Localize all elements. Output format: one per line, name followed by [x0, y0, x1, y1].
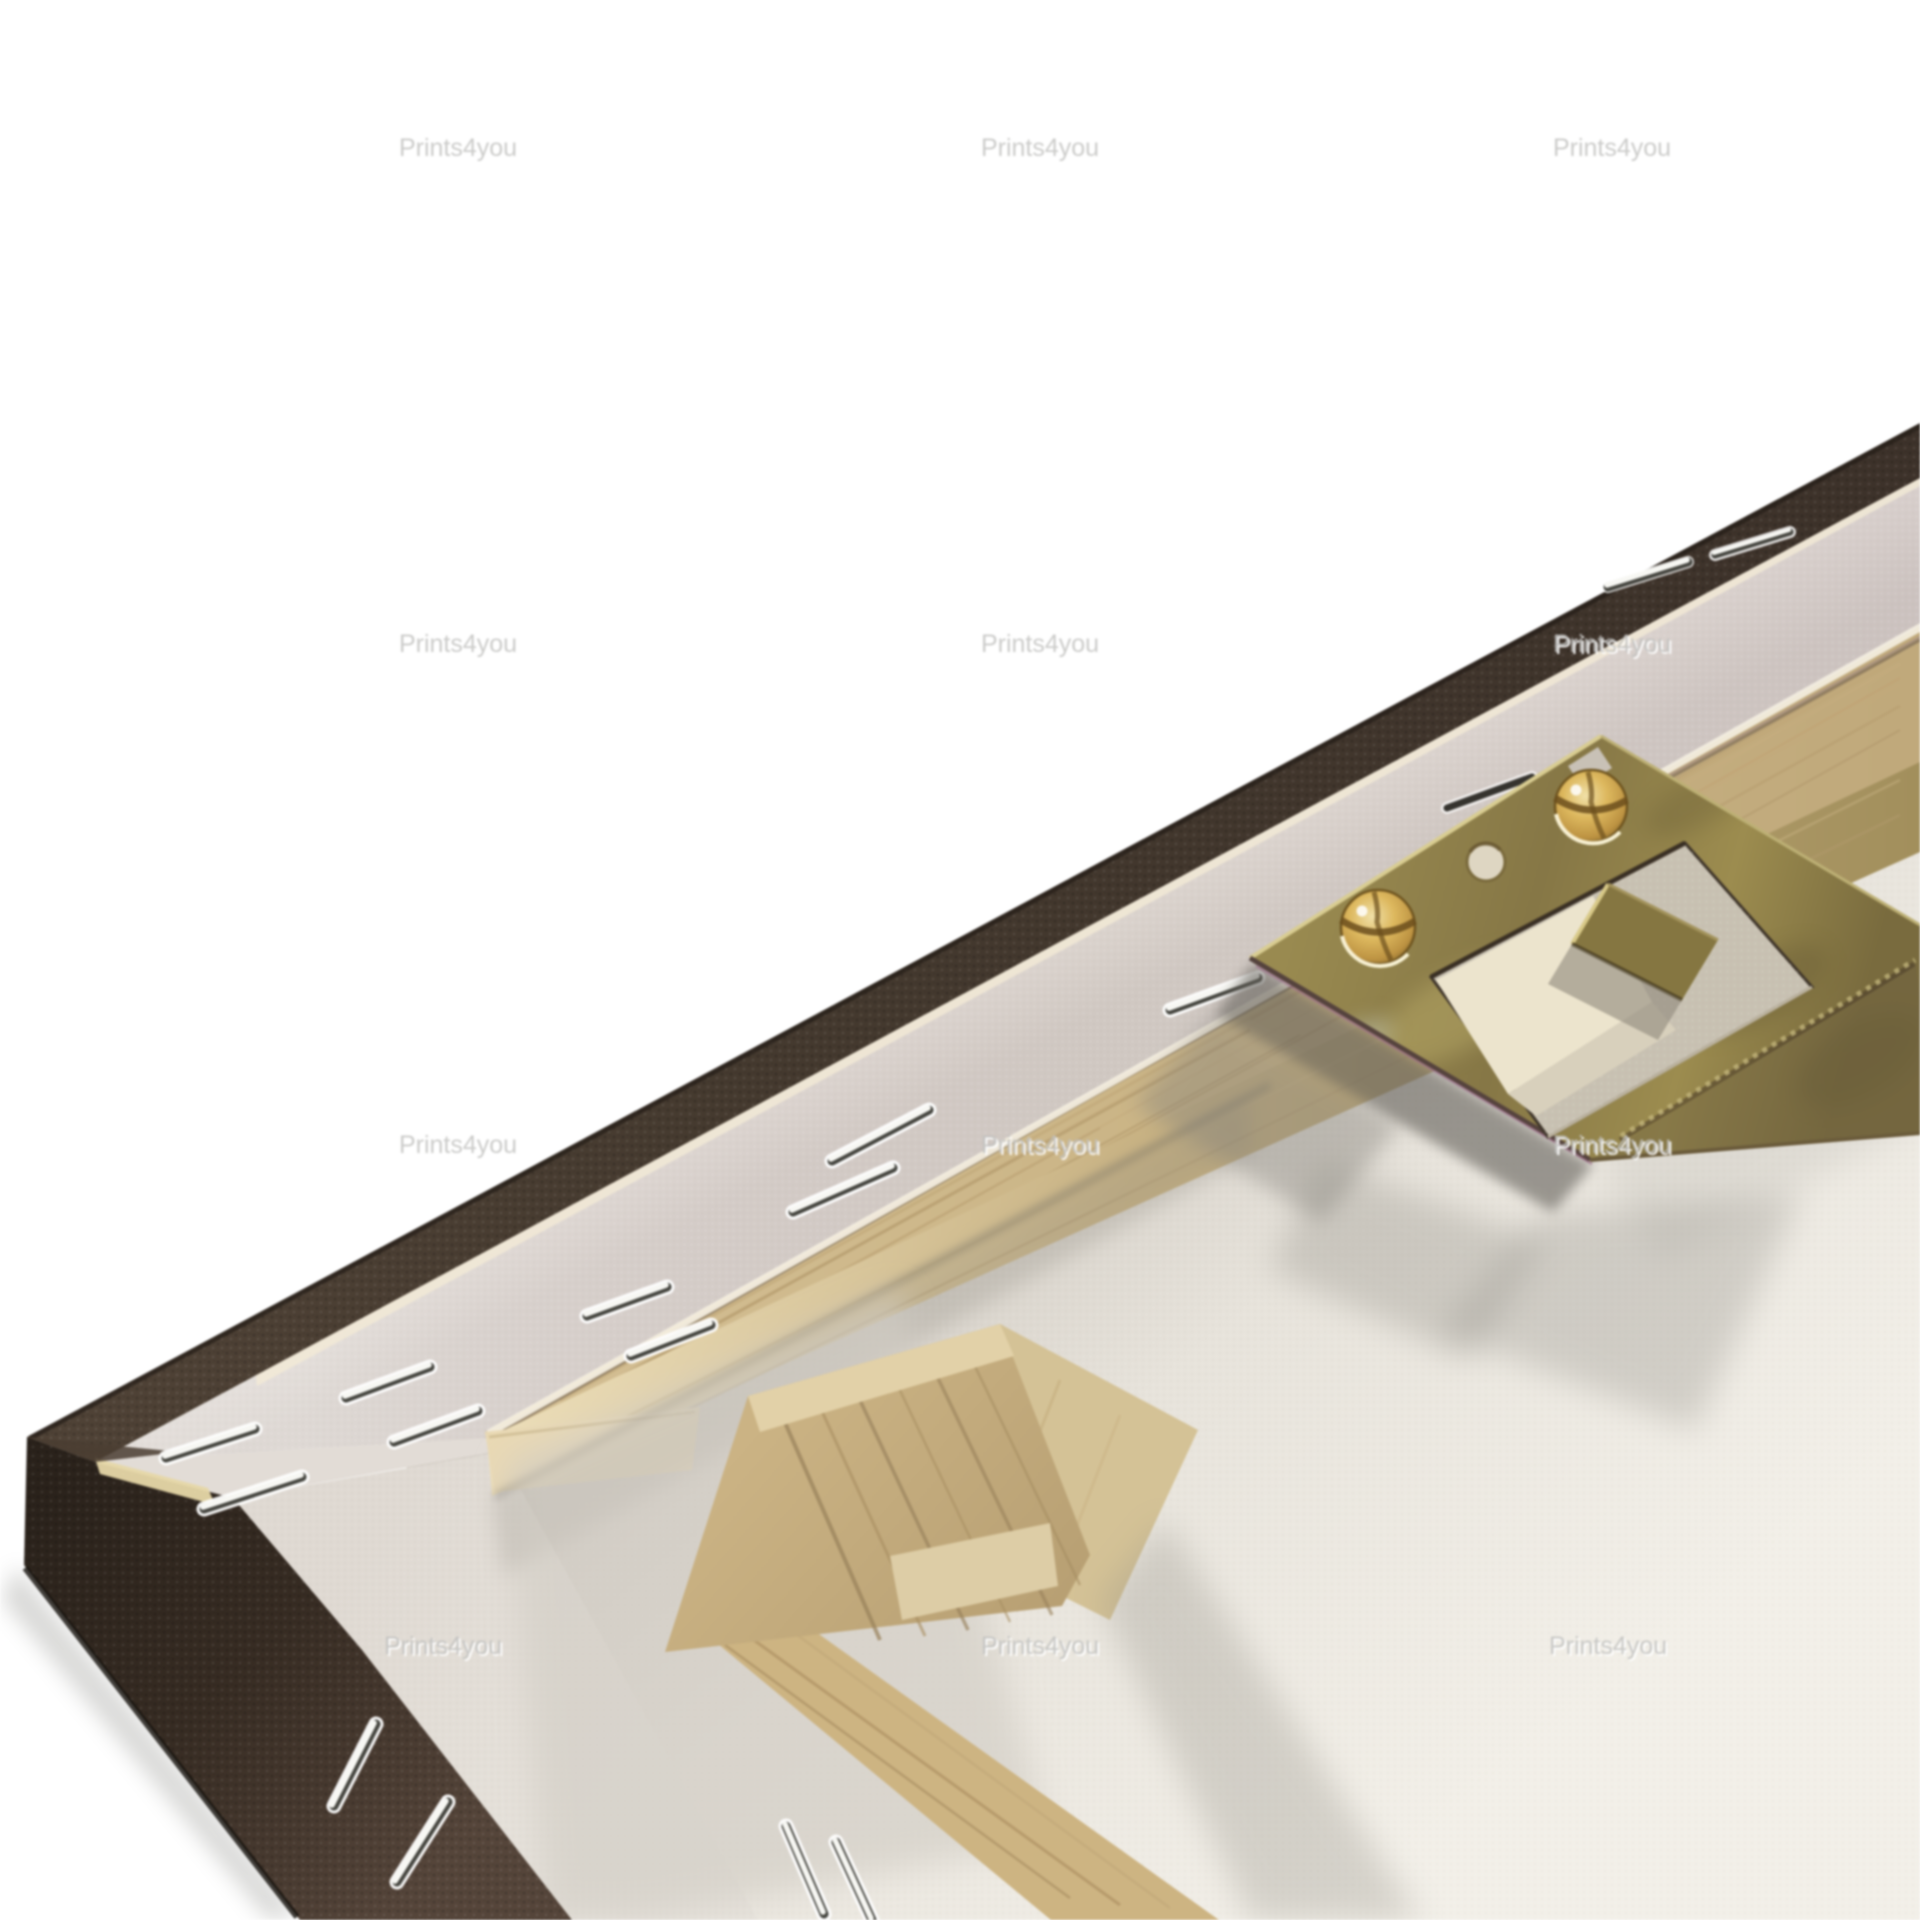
svg-text:Prints4you: Prints4you — [981, 630, 1099, 658]
svg-text:Prints4you: Prints4you — [399, 1131, 517, 1159]
svg-text:Prints4you: Prints4you — [399, 630, 517, 658]
svg-text:Prints4you: Prints4you — [1553, 630, 1671, 658]
svg-text:Prints4you: Prints4you — [1549, 1632, 1667, 1660]
svg-text:Prints4you: Prints4you — [981, 1131, 1099, 1159]
svg-text:Prints4you: Prints4you — [981, 134, 1099, 162]
svg-text:Prints4you: Prints4you — [1553, 134, 1671, 162]
svg-text:Prints4you: Prints4you — [981, 1632, 1099, 1660]
svg-text:Prints4you: Prints4you — [399, 134, 517, 162]
svg-text:Prints4you: Prints4you — [1553, 1131, 1671, 1159]
svg-text:Prints4you: Prints4you — [384, 1632, 502, 1660]
